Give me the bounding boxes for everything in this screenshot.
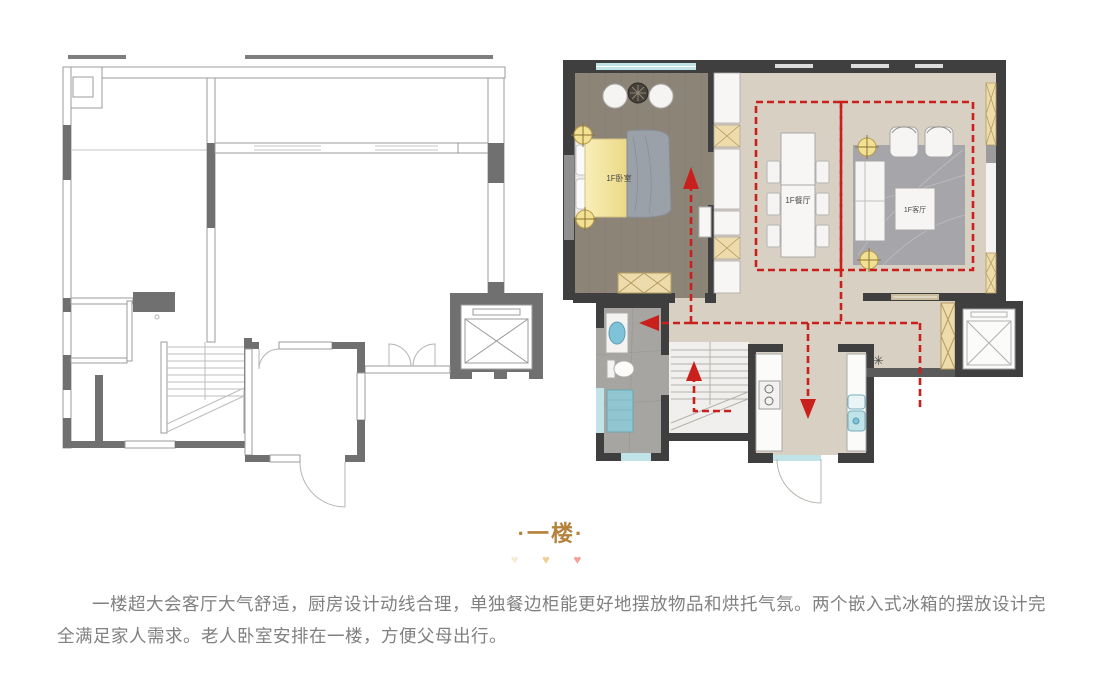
kitchen-sink xyxy=(848,395,865,431)
heart-divider: ♥ ♥ ♥ xyxy=(0,553,1102,566)
bedroom-wardrobe xyxy=(618,273,671,293)
bottom-center-room xyxy=(245,342,365,507)
window-band xyxy=(215,143,489,153)
label-living: 1F客厅 xyxy=(904,205,926,214)
description-paragraph: 一楼超大会客厅大气舒适，厨房设计动线合理，单独餐边柜能更好地摆放物品和烘托气氛。… xyxy=(57,588,1047,653)
elevator-shaft xyxy=(450,293,543,379)
dresser xyxy=(699,207,711,237)
staircase xyxy=(161,338,252,433)
overhang-strips xyxy=(68,55,493,59)
right-wall xyxy=(488,78,504,293)
corridor-double-door xyxy=(365,344,450,373)
heart-icon: ♥ xyxy=(511,553,529,566)
left-wall xyxy=(63,67,71,448)
label-dining: 1F餐厅 xyxy=(785,196,810,205)
shower xyxy=(607,390,633,432)
page-title: ·一楼· xyxy=(0,516,1102,548)
plant-icon: ✳ xyxy=(873,353,884,368)
article-page: { "section": { "title": "·一楼·", "heart_g… xyxy=(0,0,1102,698)
kitchen-door-arc xyxy=(777,459,821,503)
toilet xyxy=(607,360,634,378)
bottom-left-room xyxy=(63,292,245,448)
elevator-shaft xyxy=(941,301,1023,377)
top-wall xyxy=(63,67,505,78)
caption-block: ·一楼· ♥ ♥ ♥ xyxy=(0,516,1102,566)
floorplan-right-furnished: ✳ 1F卧室 1F餐厅 1F客厅 xyxy=(563,55,1043,515)
heart-icon: ♥ xyxy=(542,553,560,566)
floorplan-left-unfurnished xyxy=(58,55,548,515)
heart-icon: ♥ xyxy=(573,553,591,566)
label-bedroom: 1F卧室 xyxy=(606,173,631,183)
